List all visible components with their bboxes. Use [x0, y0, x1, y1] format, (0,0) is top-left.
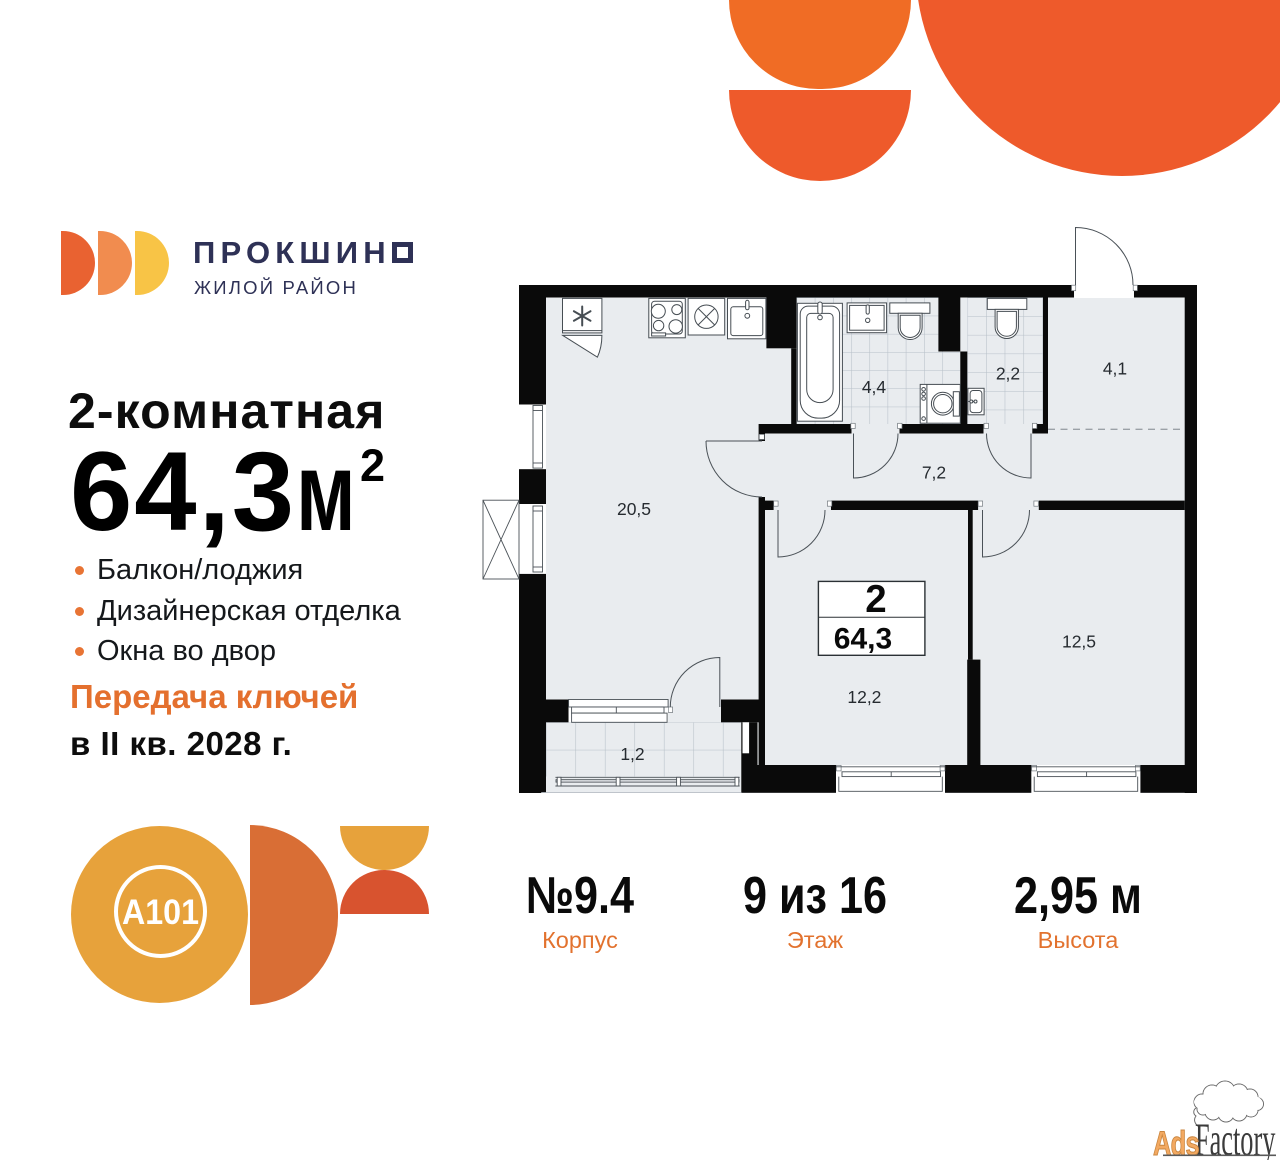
svg-text:12,5: 12,5: [1062, 631, 1096, 651]
svg-text:2: 2: [865, 578, 886, 621]
svg-text:Factory: Factory: [1195, 1114, 1275, 1160]
svg-text:20,5: 20,5: [617, 499, 651, 519]
svg-text:7,2: 7,2: [922, 463, 946, 483]
svg-text:12,2: 12,2: [847, 687, 881, 707]
svg-text:4,4: 4,4: [862, 377, 887, 397]
svg-text:4,1: 4,1: [1103, 358, 1127, 378]
svg-text:64,3: 64,3: [834, 623, 892, 656]
svg-text:2,2: 2,2: [996, 364, 1020, 384]
svg-text:1,2: 1,2: [620, 744, 644, 764]
